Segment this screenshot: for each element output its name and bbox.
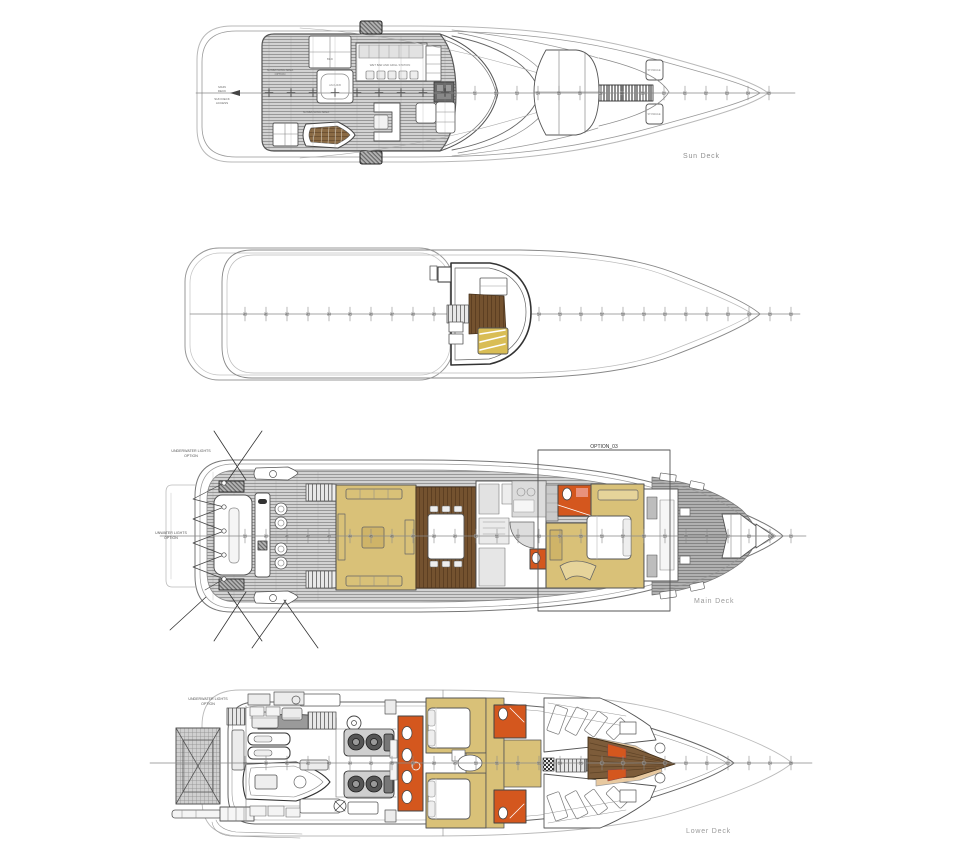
svg-text:41: 41 <box>285 761 289 765</box>
svg-text:UNDERWATER LIGHTS: UNDERWATER LIGHTS <box>188 697 228 701</box>
svg-text:65: 65 <box>789 534 793 538</box>
svg-text:50: 50 <box>474 761 478 765</box>
svg-text:54: 54 <box>558 761 562 765</box>
svg-text:48: 48 <box>432 534 436 538</box>
svg-text:62: 62 <box>726 534 730 538</box>
svg-text:39: 39 <box>243 761 247 765</box>
svg-text:58: 58 <box>620 91 624 95</box>
svg-text:STOWAGE: STOWAGE <box>647 68 660 72</box>
svg-text:41: 41 <box>264 312 268 316</box>
svg-text:43: 43 <box>327 761 331 765</box>
svg-text:STOWAGE: STOWAGE <box>647 112 660 116</box>
svg-text:UNWATER LIGHTS: UNWATER LIGHTS <box>155 531 187 535</box>
svg-text:48: 48 <box>432 761 436 765</box>
svg-text:47: 47 <box>390 312 394 316</box>
svg-text:58: 58 <box>642 761 646 765</box>
svg-text:57: 57 <box>599 91 603 95</box>
svg-text:59: 59 <box>641 91 645 95</box>
svg-text:UNDERWATER LIGHTS: UNDERWATER LIGHTS <box>171 449 211 453</box>
svg-text:Sun Deck: Sun Deck <box>683 153 720 160</box>
svg-text:46: 46 <box>390 534 394 538</box>
svg-text:52: 52 <box>516 761 520 765</box>
svg-text:39: 39 <box>243 534 247 538</box>
svg-text:62: 62 <box>704 91 708 95</box>
svg-text:58: 58 <box>642 534 646 538</box>
svg-text:61: 61 <box>705 761 709 765</box>
svg-text:44: 44 <box>327 312 331 316</box>
svg-text:44: 44 <box>348 534 352 538</box>
svg-text:59: 59 <box>663 534 667 538</box>
svg-text:61: 61 <box>705 534 709 538</box>
svg-text:56: 56 <box>600 534 604 538</box>
svg-text:54: 54 <box>536 91 540 95</box>
svg-text:45: 45 <box>348 312 352 316</box>
svg-text:42: 42 <box>285 312 289 316</box>
svg-text:56: 56 <box>579 312 583 316</box>
svg-text:55: 55 <box>579 534 583 538</box>
svg-text:43: 43 <box>327 534 331 538</box>
svg-text:63: 63 <box>747 761 751 765</box>
svg-text:46: 46 <box>369 312 373 316</box>
svg-text:52: 52 <box>494 91 498 95</box>
svg-text:65: 65 <box>789 761 793 765</box>
svg-text:45: 45 <box>369 534 373 538</box>
svg-text:47: 47 <box>411 761 415 765</box>
svg-text:63: 63 <box>726 312 730 316</box>
svg-text:55: 55 <box>557 91 561 95</box>
svg-text:58: 58 <box>621 312 625 316</box>
svg-text:62: 62 <box>726 761 730 765</box>
svg-text:57: 57 <box>600 312 604 316</box>
svg-text:52: 52 <box>516 534 520 538</box>
svg-text:66: 66 <box>789 312 793 316</box>
svg-text:64: 64 <box>747 312 751 316</box>
svg-text:54: 54 <box>558 534 562 538</box>
svg-text:44: 44 <box>348 761 352 765</box>
svg-text:OPTION: OPTION <box>201 702 215 706</box>
svg-text:61: 61 <box>684 312 688 316</box>
svg-text:Lower Deck: Lower Deck <box>686 828 731 835</box>
svg-text:42: 42 <box>306 534 310 538</box>
svg-text:SUNBATHING AREA: SUNBATHING AREA <box>303 110 330 114</box>
svg-text:60: 60 <box>663 312 667 316</box>
svg-text:45: 45 <box>369 761 373 765</box>
svg-text:49: 49 <box>432 312 436 316</box>
svg-text:50: 50 <box>474 534 478 538</box>
svg-text:DECK: DECK <box>218 89 226 93</box>
svg-text:57: 57 <box>621 534 625 538</box>
svg-text:55: 55 <box>579 761 583 765</box>
svg-text:53: 53 <box>515 91 519 95</box>
svg-text:OPTION_03: OPTION_03 <box>590 444 618 450</box>
svg-text:64: 64 <box>746 91 750 95</box>
svg-text:56: 56 <box>600 761 604 765</box>
svg-text:65: 65 <box>767 91 771 95</box>
svg-text:60: 60 <box>684 534 688 538</box>
svg-text:64: 64 <box>768 761 772 765</box>
svg-text:46: 46 <box>390 761 394 765</box>
svg-text:64: 64 <box>768 534 772 538</box>
svg-text:59: 59 <box>663 761 667 765</box>
svg-text:54: 54 <box>537 312 541 316</box>
svg-text:40: 40 <box>264 534 268 538</box>
svg-text:OPTION: OPTION <box>184 454 198 458</box>
svg-text:BED: BED <box>327 57 334 61</box>
svg-text:61: 61 <box>683 91 687 95</box>
svg-text:Main Deck: Main Deck <box>694 598 734 605</box>
svg-text:57: 57 <box>621 761 625 765</box>
svg-text:63: 63 <box>725 91 729 95</box>
svg-text:42: 42 <box>306 761 310 765</box>
svg-text:48: 48 <box>411 312 415 316</box>
svg-text:WET BAR AND GRILL STATION: WET BAR AND GRILL STATION <box>370 63 410 67</box>
svg-text:59: 59 <box>642 312 646 316</box>
svg-text:41: 41 <box>285 534 289 538</box>
svg-text:53: 53 <box>537 761 541 765</box>
svg-text:65: 65 <box>768 312 772 316</box>
svg-text:63: 63 <box>747 534 751 538</box>
svg-text:56: 56 <box>578 91 582 95</box>
svg-text:ACCESS: ACCESS <box>216 101 228 105</box>
svg-text:40: 40 <box>243 312 247 316</box>
svg-text:51: 51 <box>495 761 499 765</box>
svg-text:51: 51 <box>495 534 499 538</box>
svg-text:62: 62 <box>705 312 709 316</box>
svg-text:OPTION: OPTION <box>275 72 286 76</box>
svg-text:43: 43 <box>306 312 310 316</box>
svg-text:40: 40 <box>264 761 268 765</box>
svg-text:60: 60 <box>662 91 666 95</box>
svg-text:49: 49 <box>453 761 457 765</box>
svg-text:51: 51 <box>473 91 477 95</box>
svg-text:55: 55 <box>558 312 562 316</box>
svg-text:49: 49 <box>453 534 457 538</box>
svg-text:OPTION: OPTION <box>164 536 178 540</box>
svg-text:60: 60 <box>684 761 688 765</box>
svg-text:47: 47 <box>411 534 415 538</box>
